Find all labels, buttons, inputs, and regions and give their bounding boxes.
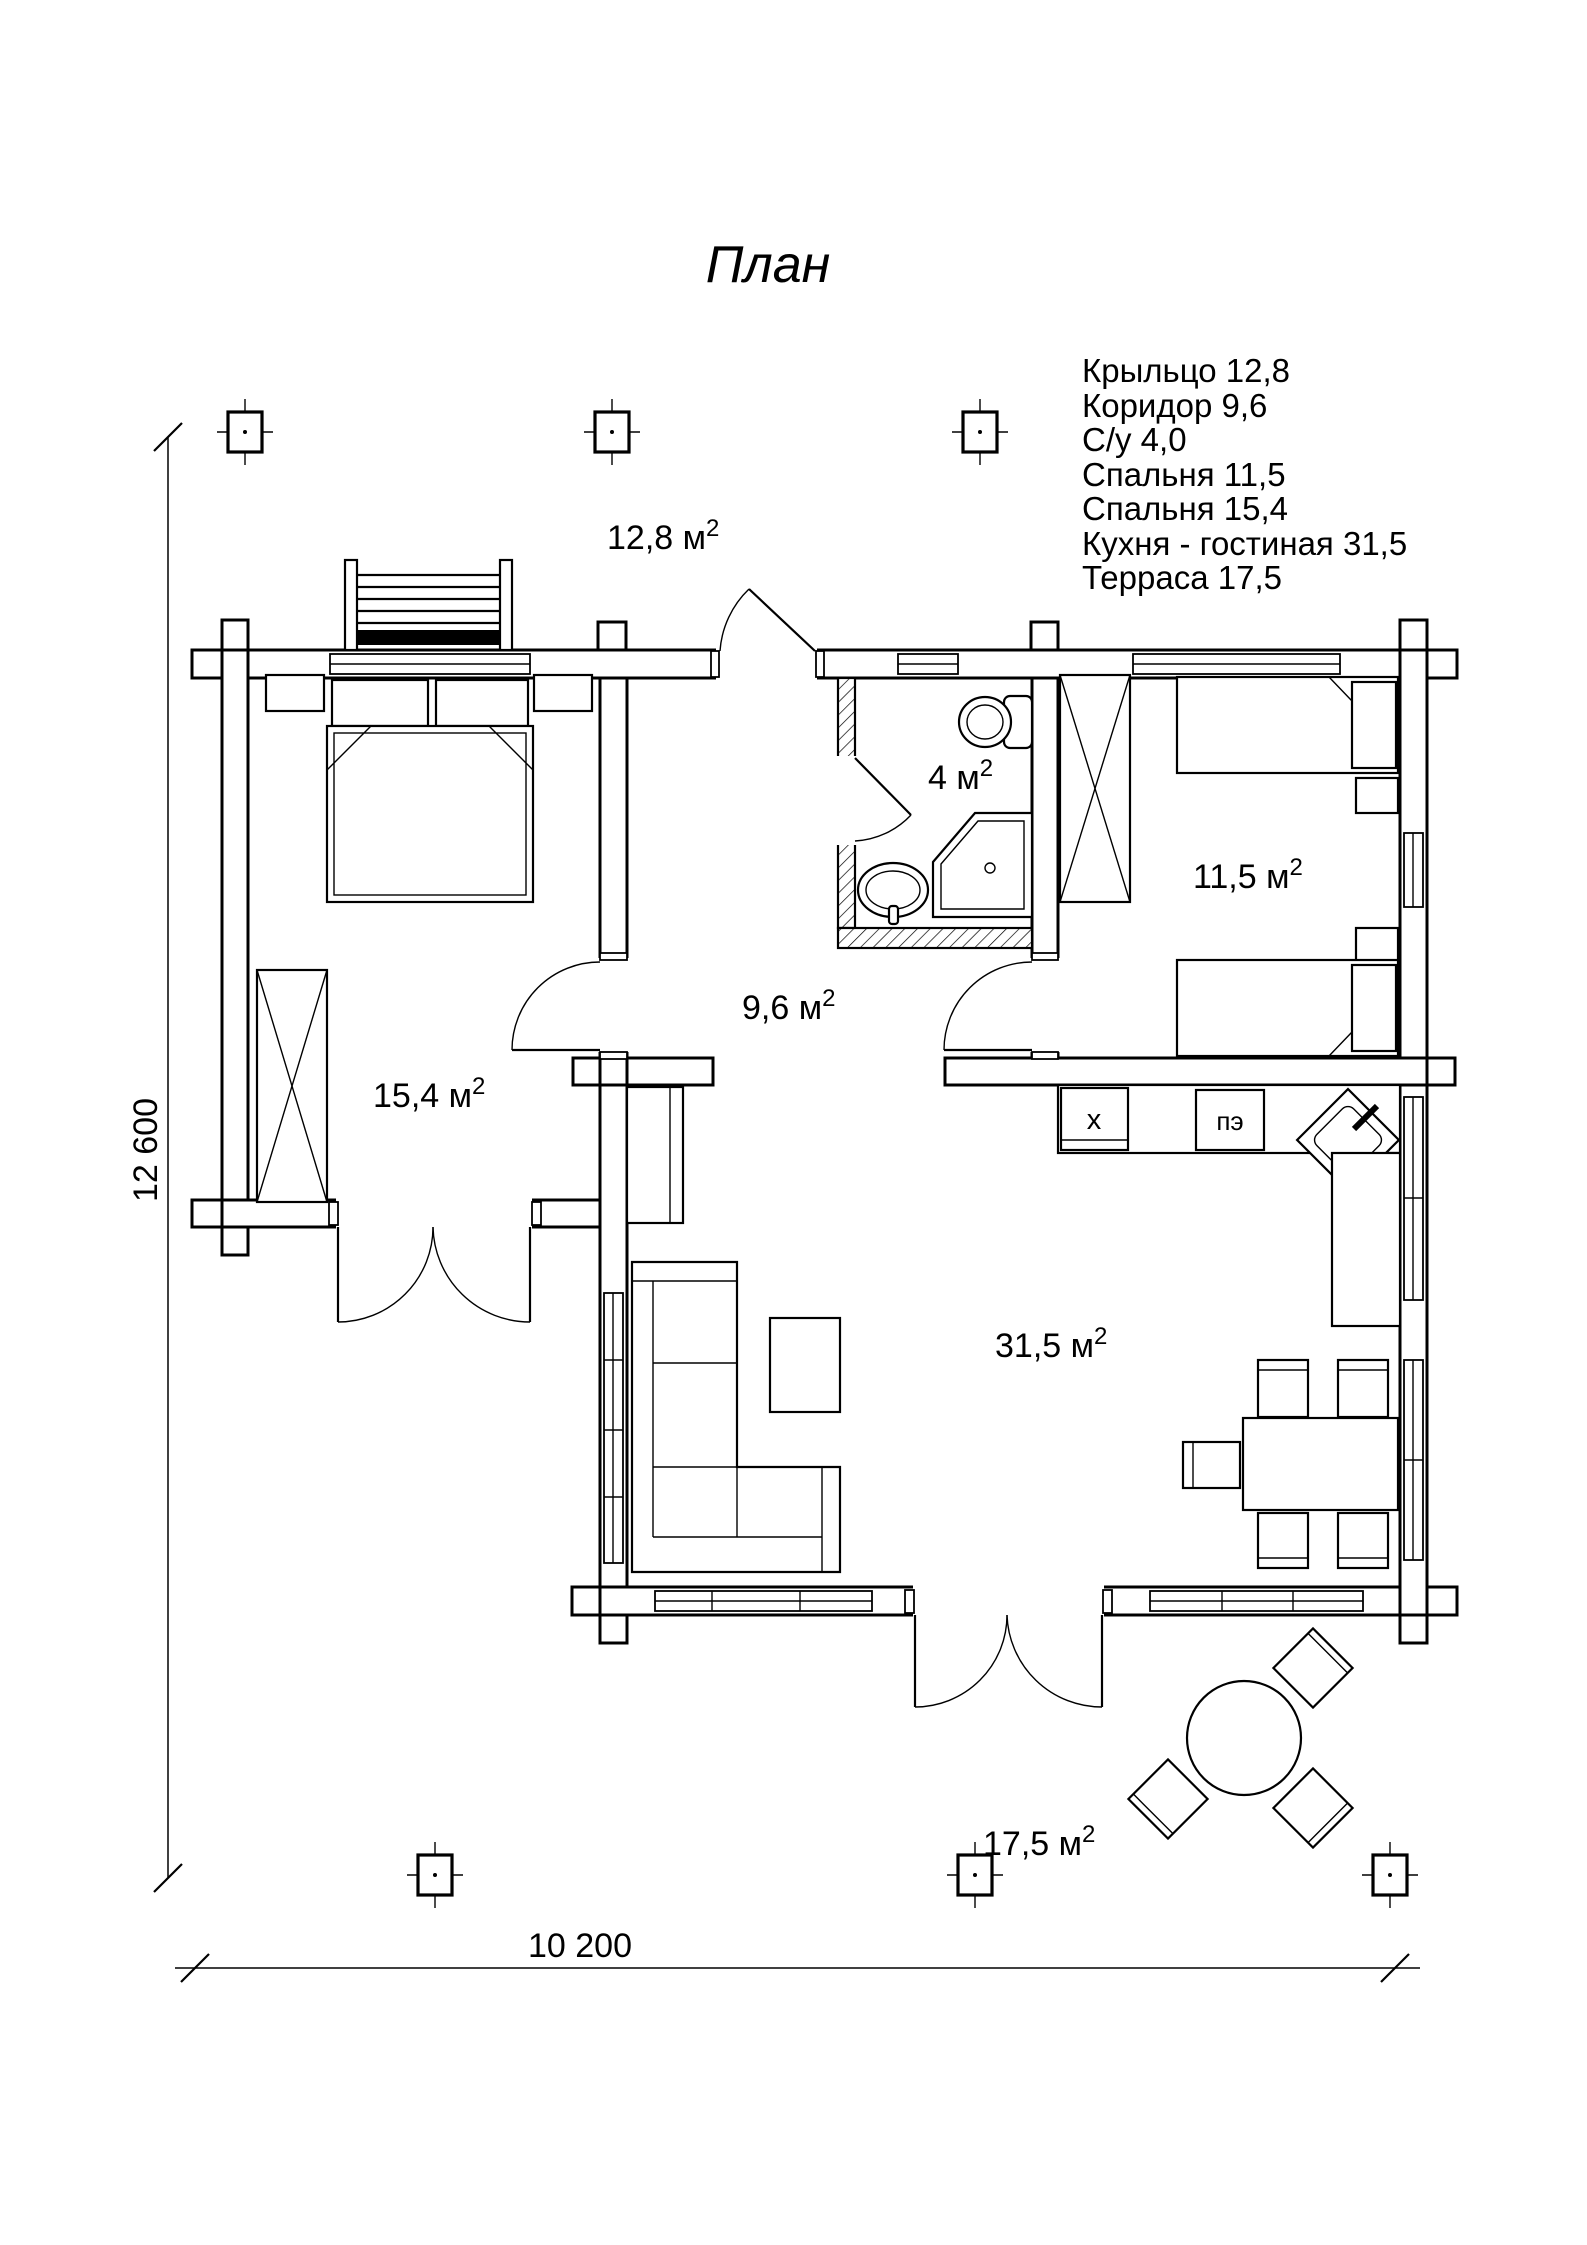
legend-item-terrace: Терраса 17,5 (1082, 559, 1282, 596)
room-label-terrace: 17,5 м2 (983, 1821, 1095, 1863)
terrace-chair (1273, 1768, 1352, 1847)
log-end-kitchen-right (1427, 1058, 1455, 1085)
wall-interior-left-upper (600, 678, 627, 960)
terrace-furniture (1128, 1628, 1352, 1847)
wall-left (222, 650, 248, 1227)
coffee-table (770, 1318, 840, 1412)
page-title: План (706, 236, 831, 294)
entry-door (711, 589, 824, 682)
bedroom-large-furniture (257, 675, 592, 1202)
window-living-right (1404, 1360, 1423, 1560)
corner-sofa (632, 1262, 840, 1572)
dining-table (1243, 1418, 1398, 1510)
window-corridor-top (898, 654, 958, 674)
log-end-br-right (1427, 1587, 1457, 1615)
legend-item-bathroom: С/у 4,0 (1082, 421, 1187, 458)
wall-stub-left-of-block (573, 1058, 600, 1085)
legend-item-bedroom-small: Спальня 11,5 (1082, 456, 1286, 493)
bedroom-french-door (329, 1198, 541, 1322)
column-marker (1362, 1842, 1418, 1908)
log-end-tr-right (1427, 650, 1457, 678)
window-bedroom-large-top (330, 654, 530, 674)
bedroom-large-door (512, 953, 629, 1059)
log-end-tl-left (192, 650, 222, 678)
log-end-bl-left (192, 1200, 222, 1227)
legend-item-corridor: Коридор 9,6 (1082, 387, 1267, 424)
column-marker (584, 399, 640, 465)
hall-cabinet (627, 1087, 683, 1223)
floor-plan-page: 12 600 10 200 План Крыльцо 12,8 Коридор … (0, 0, 1587, 2245)
bathroom-wall-left-upper (838, 678, 855, 758)
window-kitchen-right (1404, 1097, 1423, 1300)
wardrobe (1060, 675, 1130, 902)
room-label-porch: 12,8 м2 (607, 515, 719, 557)
column-marker (952, 399, 1008, 465)
legend-item-kitchen-living: Кухня - гостиная 31,5 (1082, 525, 1407, 562)
floor-plan-drawing: 12 600 10 200 План Крыльцо 12,8 Коридор … (0, 0, 1587, 2245)
chair (1258, 1513, 1308, 1568)
window-living-bottom-left (655, 1591, 872, 1611)
room-label-bathroom: 4 м2 (928, 755, 993, 797)
wardrobe (257, 970, 327, 1202)
room-label-bedroom-small: 11,5 м2 (1193, 854, 1303, 896)
room-label-bedroom-large: 15,4 м2 (373, 1073, 485, 1115)
terrace-chair (1128, 1759, 1207, 1838)
shower (933, 813, 1032, 917)
window-bedroom-small-top (1133, 654, 1340, 674)
log-end-br-down (1400, 1615, 1427, 1643)
chair (1338, 1360, 1388, 1417)
wall-bedroom-bottom-left (222, 1200, 338, 1227)
log-end-bl-down (222, 1227, 248, 1255)
log-end-wall-a-up (598, 622, 626, 650)
column-marker (217, 399, 273, 465)
legend: Крыльцо 12,8 Коридор 9,6 С/у 4,0 Спальня… (1082, 352, 1407, 596)
log-end-living-bl-down (600, 1615, 627, 1643)
porch-bench (345, 560, 512, 650)
toilet (959, 696, 1032, 748)
terrace-french-door (905, 1585, 1112, 1707)
log-end-wall-b-up (1031, 622, 1058, 650)
chair (1338, 1513, 1388, 1568)
column-marker (407, 1842, 463, 1908)
single-bed-bottom (1177, 960, 1398, 1056)
window-living-left (604, 1293, 623, 1563)
dimension-height-label: 12 600 (127, 1098, 165, 1202)
terrace-chair (1273, 1628, 1352, 1707)
double-bed (327, 680, 533, 902)
kitchen-counter-right (1332, 1153, 1400, 1326)
wall-corridor-living-left (627, 1058, 713, 1085)
window-living-bottom-right (1150, 1591, 1363, 1611)
room-label-corridor: 9,6 м2 (742, 985, 835, 1027)
wall-kitchen-top (945, 1058, 1427, 1085)
single-bed-top (1177, 677, 1398, 773)
bathroom-wall-bottom (838, 928, 1032, 948)
bathroom-door (836, 756, 911, 845)
nightstand (534, 675, 592, 711)
nightstand (1356, 778, 1398, 813)
stove-label: пэ (1216, 1106, 1243, 1136)
dimension-horizontal: 10 200 (175, 1927, 1420, 1982)
sink (858, 863, 928, 924)
fridge-label: х (1087, 1104, 1102, 1136)
log-end-living-bl-left (572, 1587, 600, 1615)
window-bedroom-small-right (1404, 833, 1423, 907)
chair (1258, 1360, 1308, 1417)
bedroom-small-door (944, 953, 1060, 1059)
log-end-tr-up (1400, 620, 1427, 650)
dimension-width-label: 10 200 (528, 1927, 632, 1965)
legend-item-porch: Крыльцо 12,8 (1082, 352, 1290, 389)
nightstand (1356, 928, 1398, 963)
bathroom-wall-left-lower (838, 843, 855, 928)
chair (1183, 1442, 1240, 1488)
dining-set (1183, 1360, 1398, 1568)
nightstand (266, 675, 324, 711)
bathroom-fixtures (858, 696, 1032, 924)
room-label-kitchen-living: 31,5 м2 (995, 1323, 1107, 1365)
log-end-tl-up (222, 620, 248, 650)
legend-item-bedroom-large: Спальня 15,4 (1082, 490, 1288, 527)
dimension-vertical: 12 600 (127, 423, 182, 1892)
round-table (1187, 1681, 1301, 1795)
wall-interior-right-upper (1032, 678, 1058, 960)
